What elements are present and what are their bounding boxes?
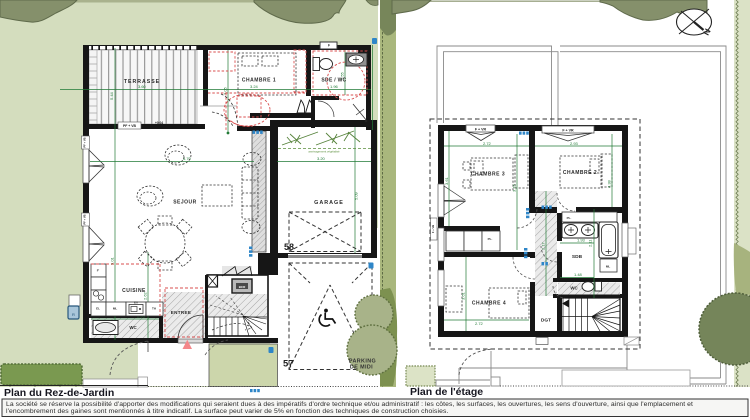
svg-text:CUISINE: CUISINE <box>122 288 146 294</box>
svg-text:57: 57 <box>283 359 294 370</box>
svg-text:PF + VB: PF + VB <box>123 124 136 128</box>
svg-text:GARAGE: GARAGE <box>314 200 344 206</box>
svg-text:SDB: SDB <box>572 254 583 260</box>
svg-text:PL.: PL. <box>488 237 493 241</box>
svg-text:Plan du Rez-de-Jardin: Plan du Rez-de-Jardin <box>4 387 114 399</box>
svg-text:ENTREE: ENTREE <box>171 310 191 315</box>
svg-text:TH: TH <box>152 307 156 311</box>
svg-text:F: F <box>328 44 330 48</box>
svg-text:1.93: 1.93 <box>577 238 586 243</box>
svg-text:5.09: 5.09 <box>354 191 359 200</box>
svg-text:2.72: 2.72 <box>475 321 484 326</box>
svg-text:DE MIDI: DE MIDI <box>350 365 373 371</box>
svg-text:3.24: 3.24 <box>250 84 259 89</box>
svg-text:3.61: 3.61 <box>461 291 466 300</box>
svg-text:l'encombrement des gaines sont: l'encombrement des gaines sont mentionné… <box>6 408 448 415</box>
svg-text:La société se réserve la possi: La société se réserve la possibilité d'a… <box>6 401 693 408</box>
svg-text:CHAMBRE 1: CHAMBRE 1 <box>242 78 276 84</box>
svg-text:3.20: 3.20 <box>317 156 326 161</box>
svg-text:PF + VB: PF + VB <box>83 137 87 147</box>
svg-text:CHAMBRE 4: CHAMBRE 4 <box>472 301 506 307</box>
svg-text:2.93: 2.93 <box>570 141 579 146</box>
svg-text:PL.: PL. <box>567 216 572 220</box>
svg-text:2.17: 2.17 <box>541 241 546 250</box>
svg-text:Plan de l'étage: Plan de l'étage <box>410 386 483 398</box>
svg-text:CHAMBRE 2: CHAMBRE 2 <box>563 170 597 176</box>
svg-text:SDE / WC: SDE / WC <box>321 78 346 84</box>
svg-text:58: 58 <box>284 242 294 252</box>
svg-text:5.44: 5.44 <box>109 91 114 100</box>
svg-text:F': F' <box>97 269 100 273</box>
svg-text:aménagement végétalisé: aménagement végétalisé <box>308 150 340 154</box>
svg-text:3.61: 3.61 <box>444 176 449 185</box>
svg-text:1.96: 1.96 <box>330 84 339 89</box>
svg-text:EL: EL <box>96 307 100 311</box>
svg-text:DGT: DGT <box>541 318 551 324</box>
svg-text:+0.04: +0.04 <box>155 121 163 125</box>
svg-text:WC: WC <box>129 325 137 330</box>
svg-text:F + VR: F + VR <box>562 129 574 133</box>
svg-text:3.15: 3.15 <box>512 183 517 192</box>
svg-text:3.05: 3.05 <box>223 86 228 95</box>
svg-text:4.38: 4.38 <box>607 179 612 188</box>
svg-text:F + VB: F + VB <box>431 225 435 233</box>
svg-text:CHAMBRE 3: CHAMBRE 3 <box>471 172 505 178</box>
svg-text:F + VR: F + VR <box>475 128 487 132</box>
svg-text:2.11: 2.11 <box>588 239 593 247</box>
svg-text:SEJOUR: SEJOUR <box>173 200 197 206</box>
svg-text:R: R <box>72 312 75 317</box>
svg-text:2.72: 2.72 <box>483 141 492 146</box>
svg-text:1.48: 1.48 <box>574 272 583 277</box>
svg-text:ML: ML <box>113 307 117 311</box>
svg-text:ML: ML <box>606 265 610 269</box>
svg-text:BCR: BCR <box>239 285 246 289</box>
svg-text:WC: WC <box>570 286 578 291</box>
svg-text:TERRASSE: TERRASSE <box>124 79 160 85</box>
svg-text:PF + VB: PF + VB <box>83 214 87 224</box>
svg-text:EV: EV <box>134 301 138 305</box>
